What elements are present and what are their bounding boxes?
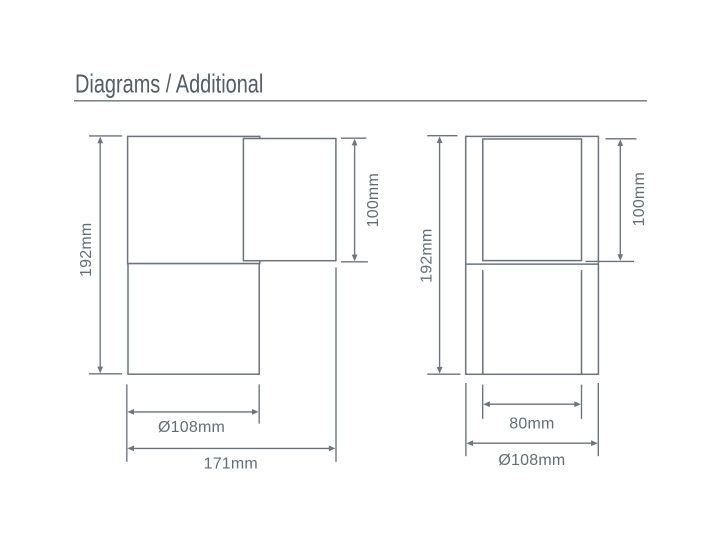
svg-text:192mm: 192mm [419, 229, 436, 283]
svg-text:Ø108mm: Ø108mm [498, 452, 565, 469]
svg-text:Ø108mm: Ø108mm [158, 419, 225, 436]
svg-text:100mm: 100mm [365, 173, 382, 227]
svg-text:192mm: 192mm [78, 223, 95, 277]
svg-text:171mm: 171mm [204, 456, 258, 473]
svg-text:100mm: 100mm [631, 172, 648, 226]
svg-text:Diagrams / Additional: Diagrams / Additional [75, 69, 263, 98]
svg-text:80mm: 80mm [509, 415, 554, 432]
